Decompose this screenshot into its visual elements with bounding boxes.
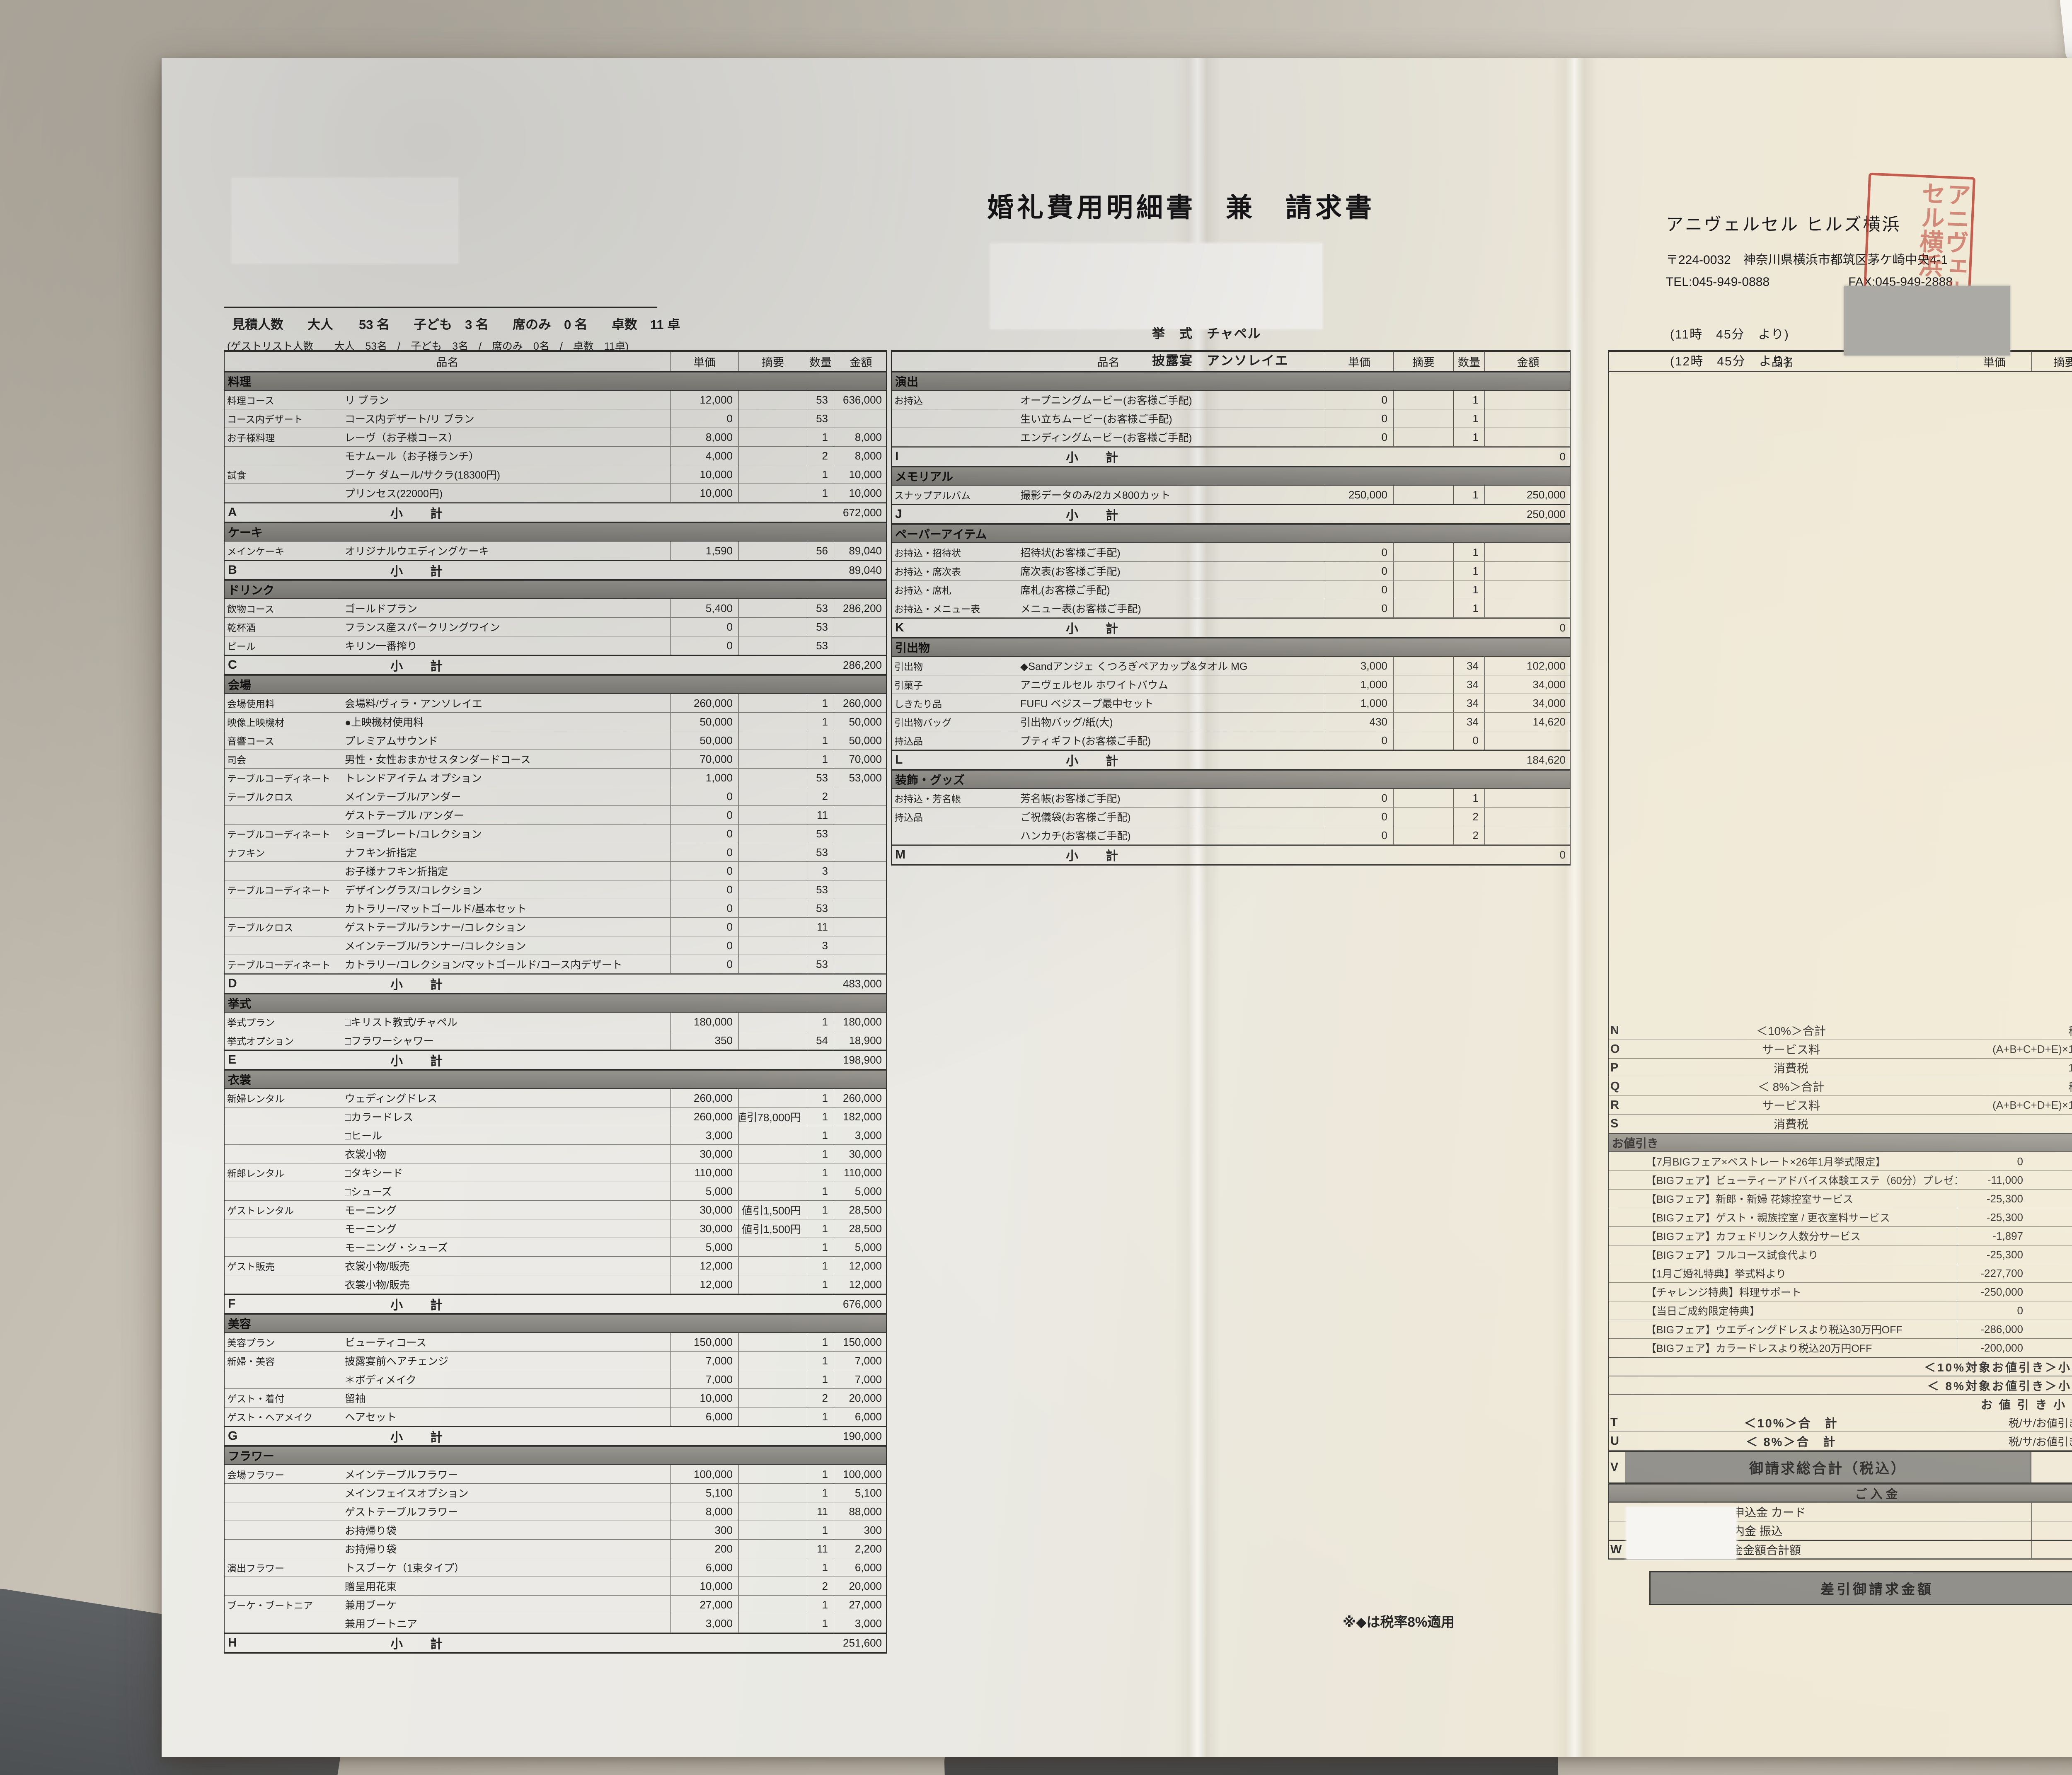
item-unit-price: 30,000 (670, 1145, 738, 1163)
totals-row: 【BIGフェア】フルコース試食代より-25,3001-25,300 (1609, 1245, 2072, 1264)
item-note (738, 391, 807, 409)
item-unit-price: 0 (670, 787, 738, 805)
item-name: 兼用ブートニア (341, 1614, 670, 1632)
discount-price: -286,000 (1957, 1320, 2031, 1338)
subtotal-amount: 0 (1560, 621, 1571, 634)
item-qty: 11 (807, 918, 834, 936)
item-name: ゲストテーブル /アンダー (341, 806, 670, 824)
cell (2031, 1152, 2072, 1170)
cell (2031, 1339, 2072, 1357)
item-category (225, 447, 341, 465)
item-unit-price: 0 (1325, 409, 1393, 428)
item-amount (834, 862, 888, 880)
item-note (1393, 409, 1453, 428)
item-category: 会場使用料 (225, 694, 341, 712)
item-category (225, 1614, 341, 1632)
item-name: プティギフト(お客様ご手配) (1016, 731, 1325, 750)
item-amount (1484, 409, 1571, 428)
discount-label: 【チャレンジ特典】料理サポート (1609, 1283, 1957, 1301)
item-name: ハンカチ(お客様ご手配) (1016, 826, 1325, 844)
item-name: 衣裳小物 (341, 1145, 670, 1163)
grand-total-row: V御請求総合計（税込）T+U¥2,905,688 (1609, 1451, 2072, 1484)
item-name: フランス産スパークリングワイン (341, 618, 670, 636)
item-amount: 20,000 (834, 1577, 888, 1595)
item-name: 衣裳小物/販売 (341, 1257, 670, 1275)
item-qty: 53 (807, 391, 834, 409)
item-amount: 28,500 (834, 1219, 888, 1238)
item-category (225, 1577, 341, 1595)
discount-label: 【当日ご成約限定特典】 (1609, 1301, 1957, 1320)
item-unit-price: 430 (1325, 713, 1393, 731)
item-amount: 14,620 (1484, 713, 1571, 731)
document-title: 婚礼費用明細書 兼 請求書 (870, 186, 1492, 225)
item-category: 音響コース (225, 731, 341, 750)
table-row: 引出物バッグ引出物バッグ/紙(大)4303414,620 (892, 713, 1570, 731)
table-row: プリンセス(22000円)10,000110,000 (225, 484, 886, 503)
item-qty: 1 (807, 750, 834, 768)
item-note (738, 862, 807, 880)
item-note (738, 409, 807, 428)
item-note: 値引1,500円 (738, 1219, 807, 1238)
item-qty: 1 (807, 1521, 834, 1539)
item-note (738, 825, 807, 843)
section-bar: ドリンク (225, 580, 886, 599)
item-unit-price: 1,000 (1325, 675, 1393, 694)
item-note (1393, 562, 1453, 580)
section-bar: ケーキ (225, 522, 886, 542)
total-formula: 10% (1957, 1059, 2072, 1077)
item-qty: 1 (807, 1484, 834, 1502)
total-label: ＜ 8%＞合 計 (1625, 1432, 1957, 1450)
item-category: テーブルクロス (225, 787, 341, 805)
item-name: メインテーブル/ランナー/コレクション (341, 936, 670, 955)
item-qty: 2 (1453, 808, 1484, 826)
subtotal-letter: J (892, 507, 1016, 521)
subtotal-amount: 286,200 (843, 659, 888, 672)
item-name: プリンセス(22000円) (341, 484, 670, 502)
item-qty: 1 (807, 1407, 834, 1426)
section-bar: 挙式 (225, 994, 886, 1013)
item-category (225, 484, 341, 502)
subtotal-label: 小 計 (341, 561, 670, 579)
table-row: 会場フラワーメインテーブルフラワー100,0001100,000 (225, 1465, 886, 1484)
subtotal-letter: E (225, 1053, 341, 1067)
table-row: 衣裳小物30,000130,000 (225, 1145, 886, 1163)
item-unit-price: 5,000 (670, 1238, 738, 1256)
cell (2031, 1227, 2072, 1245)
item-amount (1484, 599, 1571, 617)
right-totals-table: 品名 単価 摘要 数量 金額 N＜10%＞合計税抜3,281,360Oサービス料… (1608, 350, 2072, 1560)
item-category (225, 1502, 341, 1521)
table-row: お持込・メニュー表メニュー表(お客様ご手配)01 (892, 599, 1570, 618)
discount-subtotal-label: ＜10%対象お値引き＞小計 (1609, 1358, 2072, 1376)
totals-row: U＜ 8%＞合 計税/サ/お値引き込0 (1609, 1432, 2072, 1451)
table-row: □ヒール3,00013,000 (225, 1126, 886, 1145)
item-qty: 2 (807, 1389, 834, 1407)
item-qty: 1 (1453, 428, 1484, 446)
item-note (738, 694, 807, 712)
subtotal-row: K小 計0 (892, 618, 1570, 638)
item-amount (1484, 562, 1571, 580)
item-name: トレンドアイテム オプション (341, 769, 670, 787)
totals-row: ＜10%対象お値引き＞小計-989,000 (1609, 1357, 2072, 1376)
item-name: モーニング (341, 1201, 670, 1219)
subtotal-amount: 676,000 (843, 1298, 888, 1311)
item-qty: 53 (807, 880, 834, 899)
subtotal-row: M小 計0 (892, 845, 1570, 865)
subtotal-label: 小 計 (1016, 447, 1325, 466)
item-category: 新郎レンタル (225, 1163, 341, 1182)
subtotal-letter: I (892, 450, 1016, 464)
item-amount (834, 955, 888, 973)
subtotal-row: J小 計250,000 (892, 504, 1570, 524)
item-qty: 0 (1453, 731, 1484, 750)
paper-document: 婚礼費用明細書 兼 請求書 アニヴェルセル ヒルズ横浜 〒224-0032 神奈… (162, 58, 2072, 1757)
table-row: ゲスト・ヘアメイクヘアセット6,00016,000 (225, 1407, 886, 1426)
row-letter: N (1609, 1021, 1625, 1040)
table-row: 演出フラワートスブーケ（1束タイプ）6,00016,000 (225, 1558, 886, 1577)
item-unit-price: 5,400 (670, 599, 738, 617)
discount-subtotal-label: ＜ 8%対象お値引き＞小計 (1609, 1376, 2072, 1394)
item-name: □カラードレス (341, 1108, 670, 1126)
item-note (1393, 713, 1453, 731)
subtotal-row: I小 計0 (892, 447, 1570, 467)
estimate-adults: 大人 53 名 (307, 314, 390, 333)
subtotal-label: 小 計 (341, 1634, 670, 1652)
item-amount (1484, 391, 1571, 409)
table-row: お子様料理レーヴ（お子様コース）8,00018,000 (225, 428, 886, 447)
item-category (225, 1484, 341, 1502)
item-unit-price: 4,000 (670, 447, 738, 465)
grand-total-label: 御請求総合計（税込） (1625, 1452, 2031, 1482)
item-qty: 56 (807, 542, 834, 560)
item-category: 美容プラン (225, 1333, 341, 1351)
totals-row: 【1月ご婚礼特典】挙式料より-227,7001-227,700 (1609, 1264, 2072, 1283)
discount-label: 【7月BIGフェア×ベストレート×26年1月挙式限定】 (1609, 1152, 1957, 1170)
item-unit-price: 0 (670, 806, 738, 824)
item-category (225, 862, 341, 880)
total-label: サービス料 (1625, 1096, 1957, 1114)
item-amount: 8,000 (834, 428, 888, 446)
item-qty: 34 (1453, 675, 1484, 694)
table-row: メインテーブル/ランナー/コレクション03 (225, 936, 886, 955)
item-amount: 260,000 (834, 694, 888, 712)
table-row: 衣裳小物/販売12,000112,000 (225, 1275, 886, 1294)
subtotal-amount: 672,000 (843, 506, 888, 519)
row-letter (1609, 1503, 1625, 1521)
item-name: ●上映機材使用料 (341, 713, 670, 731)
item-name: メインテーブル/アンダー (341, 787, 670, 805)
table-row: テーブルクロスメインテーブル/アンダー02 (225, 787, 886, 806)
subtotal-label: 小 計 (1016, 505, 1325, 523)
item-category (225, 1108, 341, 1126)
item-name: トスブーケ（1束タイプ） (341, 1558, 670, 1577)
item-qty: 1 (807, 428, 834, 446)
item-category (892, 428, 1016, 446)
vendor-tel: TEL:045-949-0888 (1666, 275, 1769, 289)
item-name: メインフェイスオプション (341, 1484, 670, 1502)
item-qty: 53 (807, 955, 834, 973)
item-unit-price: 0 (670, 899, 738, 917)
item-amount (834, 843, 888, 861)
item-qty: 53 (807, 409, 834, 428)
item-unit-price: 0 (670, 918, 738, 936)
middle-table-body: 演出お持込オープニングムービー(お客様ご手配)01生い立ちムービー(お客様ご手配… (891, 372, 1571, 866)
item-qty: 2 (807, 447, 834, 465)
item-category: 新婦レンタル (225, 1089, 341, 1107)
item-note (1393, 789, 1453, 807)
item-qty: 1 (807, 1013, 834, 1031)
cell (2031, 1301, 2072, 1320)
item-note (738, 1407, 807, 1426)
right-table-body: N＜10%＞合計税抜3,281,360Oサービス料(A+B+C+D+E)×15%… (1608, 1021, 2072, 1560)
total-label: ＜10%＞合 計 (1625, 1413, 1957, 1432)
item-name: ブーケ ダムール/サクラ(18300円) (341, 465, 670, 484)
item-unit-price: 30,000 (670, 1219, 738, 1238)
tax-footnote: ※◆は税率8%適用 (1343, 1611, 1455, 1631)
section-bar: 衣裳 (225, 1070, 886, 1089)
totals-row: Q＜ 8%＞合計税抜0 (1609, 1077, 2072, 1096)
item-unit-price: 7,000 (670, 1370, 738, 1388)
redaction-payment-names (1627, 1507, 1736, 1559)
item-unit-price: 10,000 (670, 484, 738, 502)
item-unit-price: 0 (670, 862, 738, 880)
ceremony-line: 挙 式 チャペル (1152, 323, 1261, 342)
item-qty: 1 (807, 465, 834, 484)
item-amount: 182,000 (834, 1108, 888, 1126)
item-note (738, 1370, 807, 1388)
item-unit-price: 250,000 (1325, 486, 1393, 504)
table-row: お持込・席次表席次表(お客様ご手配)01 (892, 562, 1570, 580)
item-amount: 7,000 (834, 1370, 888, 1388)
subtotal-label: 小 計 (341, 975, 670, 993)
estimate-tables: 卓数 11 卓 (612, 314, 680, 333)
item-name: 芳名帳(お客様ご手配) (1016, 789, 1325, 807)
item-note (738, 1145, 807, 1163)
payments-bar-label: ご入金 (1609, 1484, 2072, 1502)
row-letter: V (1609, 1452, 1625, 1482)
item-name: モナムール（お子様ランチ） (341, 447, 670, 465)
col-unit-price: 単価 (1325, 352, 1393, 371)
item-category: 料理コース (225, 391, 341, 409)
table-row: お持込オープニングムービー(お客様ご手配)01 (892, 391, 1570, 409)
section-bar: 引出物 (892, 638, 1570, 657)
subtotal-letter: M (892, 848, 1016, 862)
cell (1957, 1521, 2031, 1540)
table-row: ＊ボディメイク7,00017,000 (225, 1370, 886, 1389)
item-amount: 260,000 (834, 1089, 888, 1107)
item-name: □ヒール (341, 1126, 670, 1144)
subtotal-label: 小 計 (1016, 619, 1325, 637)
discount-price: -25,300 (1957, 1208, 2031, 1226)
item-note (1393, 391, 1453, 409)
item-unit-price: 180,000 (670, 1013, 738, 1031)
totals-row: お 値 引 き 小 計-989,000 (1609, 1395, 2072, 1413)
item-category (892, 826, 1016, 844)
section-bar: 会場 (225, 675, 886, 694)
item-amount (834, 825, 888, 843)
item-category (225, 1145, 341, 1163)
item-amount: 50,000 (834, 731, 888, 750)
item-note (738, 1558, 807, 1577)
item-category: 引出物 (892, 657, 1016, 675)
item-qty: 1 (807, 1558, 834, 1577)
item-amount (834, 899, 888, 917)
item-qty: 1 (807, 713, 834, 731)
item-unit-price: 0 (1325, 562, 1393, 580)
table-row: 新婦・美容披露宴前ヘアチェンジ7,00017,000 (225, 1352, 886, 1370)
subtotal-letter: F (225, 1297, 341, 1311)
total-formula: 税抜 (1957, 1021, 2072, 1040)
col-qty: 数量 (1453, 352, 1484, 371)
item-name: 会場料/ヴィラ・アンソレイエ (341, 694, 670, 712)
totals-row: Rサービス料(A+B+C+D+E)×15%0 (1609, 1096, 2072, 1115)
item-amount: 5,000 (834, 1182, 888, 1200)
table-row: お持帰り袋3001300 (225, 1521, 886, 1540)
item-note (738, 1333, 807, 1351)
white-object-top-right (2058, 0, 2072, 63)
item-unit-price: 27,000 (670, 1596, 738, 1614)
item-note (738, 599, 807, 617)
table-row: 料理コースリ ブラン12,00053636,000 (225, 391, 886, 409)
item-category: 乾杯酒 (225, 618, 341, 636)
item-qty: 1 (807, 694, 834, 712)
item-qty: 1 (807, 1163, 834, 1182)
section-bar: メモリアル (892, 467, 1570, 486)
cell (2031, 1283, 2072, 1301)
item-unit-price: 0 (670, 936, 738, 955)
subtotal-amount: 0 (1560, 450, 1571, 463)
totals-row: N＜10%＞合計税抜3,281,360 (1609, 1021, 2072, 1040)
item-name: ご祝儀袋(お客様ご手配) (1016, 808, 1325, 826)
row-letter: P (1609, 1059, 1625, 1077)
fold-crease-2 (1552, 58, 1598, 1757)
item-amount: 89,040 (834, 542, 888, 560)
item-note (738, 769, 807, 787)
item-note (738, 1182, 807, 1200)
row-letter: T (1609, 1413, 1625, 1432)
item-qty: 2 (807, 1577, 834, 1595)
item-note (738, 1465, 807, 1483)
item-amount: 5,000 (834, 1238, 888, 1256)
item-amount (1484, 731, 1571, 750)
item-unit-price: 8,000 (670, 428, 738, 446)
item-unit-price: 0 (670, 880, 738, 899)
total-label: サービス料 (1625, 1040, 1957, 1058)
item-amount (834, 936, 888, 955)
item-category (892, 409, 1016, 428)
subtotal-letter: K (892, 621, 1016, 635)
subtotal-amount: 250,000 (1527, 508, 1571, 521)
item-name: リ ブラン (341, 391, 670, 409)
item-unit-price: 0 (1325, 391, 1393, 409)
total-label: ＜10%＞合計 (1625, 1021, 1957, 1040)
item-note (1393, 694, 1453, 712)
table-row: コース内デザートコース内デザート/リ ブラン053 (225, 409, 886, 428)
item-note (738, 899, 807, 917)
item-note (1393, 543, 1453, 561)
total-formula: 税抜 (1957, 1077, 2072, 1095)
item-qty: 2 (1453, 826, 1484, 844)
subtotal-row: F小 計676,000 (225, 1294, 886, 1314)
redaction-stamp-area (1844, 286, 2010, 355)
item-unit-price: 50,000 (670, 731, 738, 750)
photo-scene: 婚礼費用明細書 兼 請求書 アニヴェルセル ヒルズ横浜 〒224-0032 神奈… (0, 0, 2072, 1775)
item-note (738, 787, 807, 805)
item-unit-price: 260,000 (670, 694, 738, 712)
table-row: ゲストテーブル /アンダー011 (225, 806, 886, 825)
item-unit-price: 110,000 (670, 1163, 738, 1182)
item-category: 持込品 (892, 808, 1016, 826)
item-note (738, 465, 807, 484)
subtotal-letter: H (225, 1636, 341, 1650)
total-label: ＜ 8%＞合計 (1625, 1077, 1957, 1095)
row-letter: R (1609, 1096, 1625, 1114)
item-amount: 100,000 (834, 1465, 888, 1483)
totals-row: 【BIGフェア】ゲスト・親族控室 / 更衣室料サービス-25,3000 (1609, 1208, 2072, 1227)
subtotal-row: G小 計190,000 (225, 1426, 886, 1446)
item-note (738, 1614, 807, 1632)
item-qty: 1 (1453, 562, 1484, 580)
item-category: お持込・席次表 (892, 562, 1016, 580)
item-category: 飲物コース (225, 599, 341, 617)
item-note (1393, 808, 1453, 826)
col-amount: 金額 (1484, 352, 1571, 371)
item-unit-price: 10,000 (670, 1389, 738, 1407)
item-qty: 1 (807, 1108, 834, 1126)
subtotal-row: E小 計198,900 (225, 1050, 886, 1070)
item-qty: 1 (807, 1238, 834, 1256)
item-note (738, 1352, 807, 1370)
item-amount: 20,000 (834, 1389, 888, 1407)
item-qty: 2 (807, 787, 834, 805)
item-unit-price: 350 (670, 1031, 738, 1050)
item-unit-price: 6,000 (670, 1407, 738, 1426)
item-amount: 102,000 (1484, 657, 1571, 675)
item-unit-price: 0 (670, 825, 738, 843)
item-name: アニヴェルセル ホワイトバウム (1016, 675, 1325, 694)
item-amount (1484, 580, 1571, 599)
section-bar: フラワー (225, 1446, 886, 1465)
left-table-header: 品名 単価 摘要 数量 金額 (224, 350, 887, 372)
total-formula: 税/サ/お値引き込 (1957, 1413, 2072, 1432)
item-qty: 1 (807, 1126, 834, 1144)
subtotal-letter: A (225, 505, 341, 520)
cell (2031, 1190, 2072, 1208)
discount-price: 0 (1957, 1301, 2031, 1320)
item-qty: 11 (807, 1540, 834, 1558)
item-unit-price: 0 (670, 636, 738, 655)
item-unit-price: 0 (1325, 580, 1393, 599)
item-note (1393, 826, 1453, 844)
item-qty: 53 (807, 769, 834, 787)
item-unit-price: 0 (1325, 826, 1393, 844)
discount-label: 【BIGフェア】フルコース試食代より (1609, 1245, 1957, 1264)
item-name: お持帰り袋 (341, 1521, 670, 1539)
item-name: 贈呈用花束 (341, 1577, 670, 1595)
item-category: ブーケ・ブートニア (225, 1596, 341, 1614)
total-formula: (A+B+C+D+E)×15% (1957, 1040, 2072, 1058)
item-qty: 1 (807, 1465, 834, 1483)
item-amount: 88,000 (834, 1502, 888, 1521)
item-category: テーブルコーディネート (225, 955, 341, 973)
section-bar: 演出 (892, 372, 1570, 391)
cell (2031, 1245, 2072, 1264)
item-unit-price: 150,000 (670, 1333, 738, 1351)
item-name: オープニングムービー(お客様ご手配) (1016, 391, 1325, 409)
item-name: カトラリー/マットゴールド/基本セット (341, 899, 670, 917)
item-qty: 1 (807, 731, 834, 750)
